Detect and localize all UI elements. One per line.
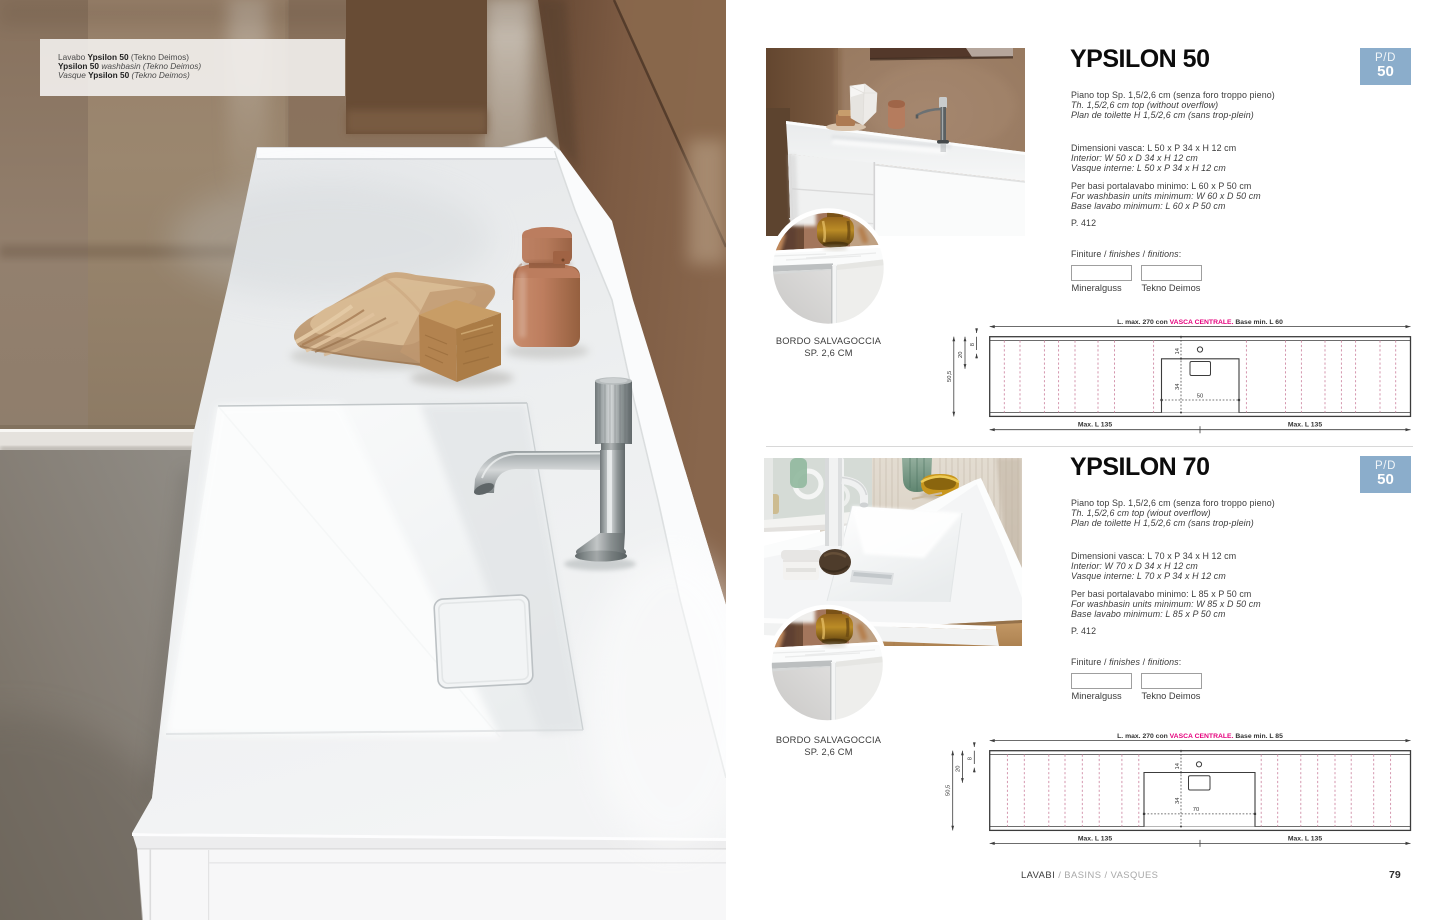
svg-text:Max. L 135: Max. L 135 xyxy=(1288,422,1322,429)
svg-text:14: 14 xyxy=(1175,347,1181,354)
svg-text:34: 34 xyxy=(1175,383,1181,390)
svg-text:Max. L 135: Max. L 135 xyxy=(1078,835,1112,842)
svg-text:L. max. 270 con VASCA CENTRALE: L. max. 270 con VASCA CENTRALE. Base min… xyxy=(1117,733,1283,740)
svg-text:50,5: 50,5 xyxy=(947,371,953,382)
svg-text:70: 70 xyxy=(1193,807,1199,813)
svg-text:8: 8 xyxy=(968,757,974,760)
svg-text:Max. L 135: Max. L 135 xyxy=(1288,835,1322,842)
svg-text:34: 34 xyxy=(1175,797,1181,804)
svg-text:50: 50 xyxy=(1197,394,1203,400)
svg-text:20: 20 xyxy=(958,352,964,358)
svg-text:20: 20 xyxy=(956,766,962,772)
svg-text:Max. L 135: Max. L 135 xyxy=(1078,422,1112,429)
svg-text:14: 14 xyxy=(1175,762,1181,769)
svg-text:50,5: 50,5 xyxy=(946,785,952,796)
svg-text:8: 8 xyxy=(970,343,976,346)
svg-text:L. max. 270 con VASCA CENTRALE: L. max. 270 con VASCA CENTRALE. Base min… xyxy=(1117,319,1283,326)
